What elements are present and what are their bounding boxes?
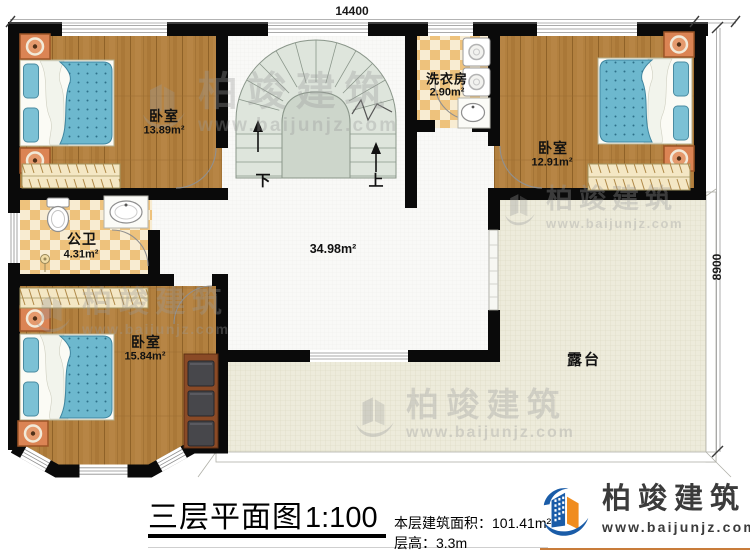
label-stairs-up: 上 [368, 174, 385, 189]
label-laundry-area: 2.90m² [430, 88, 465, 99]
label-terrace-name: 露台 [567, 353, 601, 368]
wardrobe-icon [22, 164, 120, 188]
wall-hall-right-lower [488, 310, 500, 362]
label-stairs-down: 下 [255, 174, 272, 189]
title-underline [148, 534, 386, 538]
label-bedroom3-name: 卧室 [131, 335, 161, 349]
nightstand-icon [664, 32, 694, 57]
wall-bedroom2-right [694, 22, 706, 200]
nightstand-icon [20, 34, 50, 59]
window-bay-center [80, 465, 128, 478]
label-bedroom2-name: 卧室 [538, 141, 568, 155]
wall-stub [405, 132, 417, 208]
bed-icon [598, 58, 692, 144]
title-text: 三层平面图 [148, 501, 303, 534]
footer-divider [148, 547, 548, 548]
nightstand-icon [18, 421, 48, 446]
floor-terrace [494, 196, 710, 454]
floor-hall-east [412, 128, 494, 204]
label-bedroom3-area: 15.84m² [125, 352, 166, 363]
sink-icon [104, 196, 148, 228]
window [428, 22, 473, 36]
window [310, 350, 408, 362]
dimension-top: 14400 [335, 5, 368, 17]
footer-divider-accent [540, 548, 750, 550]
window [8, 213, 20, 263]
label-bedroom2-area: 12.91m² [532, 158, 573, 169]
label-bedroom1-area: 13.89m² [144, 126, 185, 137]
laundry-sink-icon [458, 98, 490, 128]
bed-icon [20, 60, 114, 146]
window [537, 22, 637, 36]
wardrobe-icon [20, 288, 148, 308]
floor-terrace-west [222, 356, 502, 454]
bed-icon [20, 334, 114, 420]
wall-laundry-left [405, 30, 417, 132]
terrace-railing [489, 230, 498, 310]
page-title: 三层平面图1:100 [148, 492, 378, 536]
wall-hall-bottom-west [216, 350, 310, 362]
brand-logo-icon [538, 484, 596, 542]
floor-height-value: 3.3m [436, 535, 467, 551]
wall-hall-bottom-east [408, 350, 500, 362]
label-hall-area: 34.98m² [310, 243, 357, 256]
label-laundry-name: 洗衣房 [426, 73, 468, 86]
floor-corridor [152, 194, 228, 286]
label-bathroom-area: 4.31m² [64, 250, 99, 261]
wall-bathroom-bottom [8, 274, 174, 286]
wall-laundry-bottom-west [405, 120, 435, 132]
title-scale: 1:100 [305, 502, 378, 534]
brand-name: 柏竣建筑 [602, 484, 750, 516]
window [62, 22, 167, 36]
washer-icon [463, 38, 490, 66]
floor-height-line: 层高：3.3m [394, 533, 467, 552]
label-bathroom-name: 公卫 [67, 232, 97, 246]
dresser-icon [184, 354, 218, 448]
dimension-right: 8900 [711, 254, 723, 281]
window [268, 22, 368, 36]
label-bedroom1-name: 卧室 [149, 109, 179, 123]
brand-block: 柏竣建筑 www.baijunjz.com [538, 484, 750, 542]
toilet-icon [47, 198, 69, 232]
floor-area-label: 本层建筑面积： [394, 515, 492, 531]
floor-plan-drawing [0, 0, 750, 552]
wardrobe-icon [588, 164, 690, 190]
nightstand-icon [20, 306, 50, 331]
floor-plan-page: 柏竣建筑 www.baijunjz.com 柏竣建筑 www.baijunjz.… [0, 0, 750, 552]
floor-area-line: 本层建筑面积：101.41m² [394, 513, 551, 533]
floor-height-label: 层高： [394, 535, 436, 551]
wall-bedroom1-right [216, 30, 228, 148]
brand-url: www.baijunjz.com [602, 519, 750, 535]
